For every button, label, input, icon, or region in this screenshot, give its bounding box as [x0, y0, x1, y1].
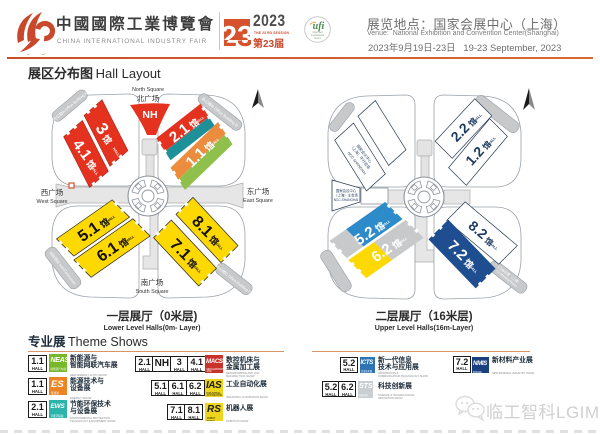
svg-text:一层展厅（0米层): 一层展厅（0米层) [107, 309, 198, 323]
svg-text:East Square: East Square [243, 198, 273, 204]
svg-text:North Square: North Square [132, 87, 164, 93]
svg-text:West Square: West Square [36, 199, 67, 205]
svg-text:北广场: 北广场 [137, 93, 160, 103]
svg-text:东广场: 东广场 [247, 186, 270, 196]
svg-text:二层展厅（16米层): 二层展厅（16米层) [375, 309, 472, 323]
svg-text:Upper Level Halls(16m-Layer): Upper Level Halls(16m-Layer) [375, 325, 473, 332]
svg-text:NCC-SHANGHAI: NCC-SHANGHAI [334, 198, 359, 202]
svg-text:西广场: 西广场 [41, 187, 64, 197]
svg-text:南广场: 南广场 [141, 277, 164, 287]
svg-text:Event: Event [314, 37, 320, 40]
svg-text:NH: NH [142, 109, 157, 121]
svg-text:（上海）主会场: （上海）主会场 [334, 193, 358, 198]
svg-text:国家会议中心: 国家会议中心 [336, 188, 357, 193]
svg-text:South Square: South Square [136, 289, 169, 295]
